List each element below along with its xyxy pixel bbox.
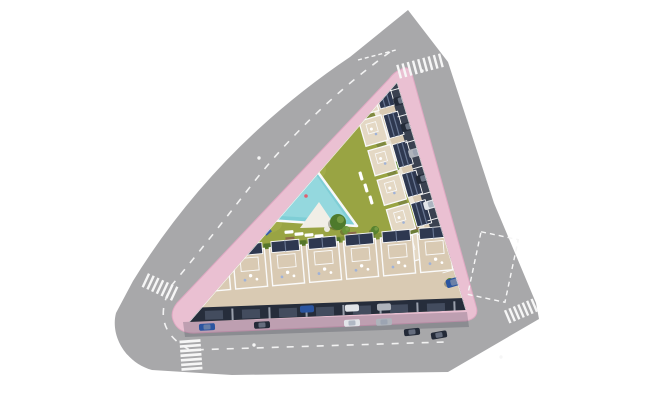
garage-car [300, 305, 314, 313]
reflector-dot [499, 355, 502, 358]
garage-car [377, 303, 391, 311]
sun-lounger [294, 232, 303, 236]
street-parked-car [344, 319, 360, 327]
street-parked-car [199, 323, 215, 331]
garage-door [279, 308, 297, 318]
sun-lounger [304, 233, 313, 237]
car-roof [408, 329, 415, 335]
reflector-dot [252, 343, 255, 346]
site-plan-page: Aerial top-down architectural render of … [0, 0, 660, 403]
garage-door [205, 310, 223, 320]
garage-pilaster [268, 307, 270, 319]
sun-lounger [284, 230, 293, 234]
pool-buoy [304, 194, 308, 198]
garage-car [345, 304, 359, 312]
site-plan-render: Aerial top-down architectural render of … [0, 0, 660, 403]
garage-door [316, 307, 334, 317]
tree-highlight [374, 227, 378, 231]
car-body [300, 305, 314, 313]
bottom-unit [380, 229, 416, 276]
garage-pilaster [231, 308, 233, 320]
car-roof [380, 319, 387, 324]
street-parked-car [376, 318, 392, 326]
reflector-dot [257, 156, 260, 159]
car-roof [203, 324, 210, 329]
garage-door [242, 309, 260, 319]
car-roof [258, 322, 265, 327]
street-parked-car [254, 321, 270, 329]
car-body [377, 303, 391, 311]
tree-highlight [337, 216, 344, 223]
car-roof [348, 320, 355, 325]
bottom-unit [306, 236, 342, 283]
car-body [345, 304, 359, 312]
garage-door [390, 304, 408, 314]
bottom-unit [269, 239, 305, 286]
tree-highlight [345, 227, 349, 231]
bottom-unit [343, 233, 379, 280]
garage-pilaster [342, 305, 344, 317]
